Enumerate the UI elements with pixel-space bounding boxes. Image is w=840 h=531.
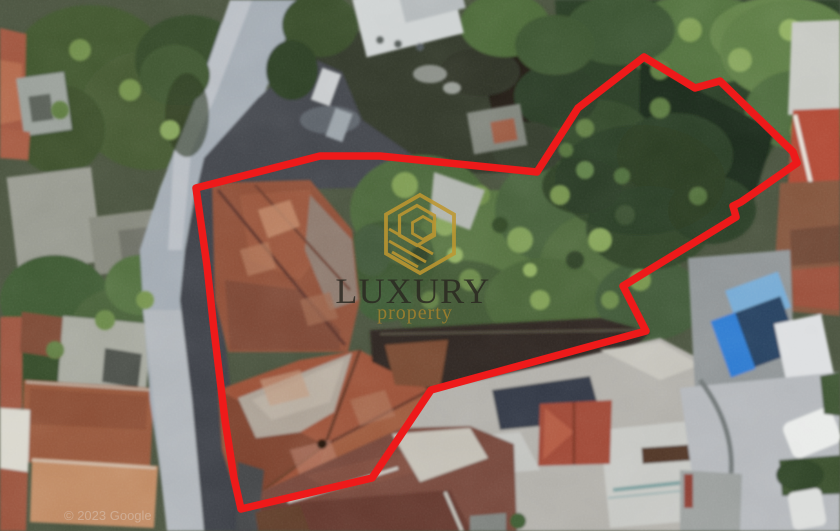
svg-text:© 2023 Google: © 2023 Google [64, 508, 152, 523]
svg-text:property: property [377, 302, 453, 324]
